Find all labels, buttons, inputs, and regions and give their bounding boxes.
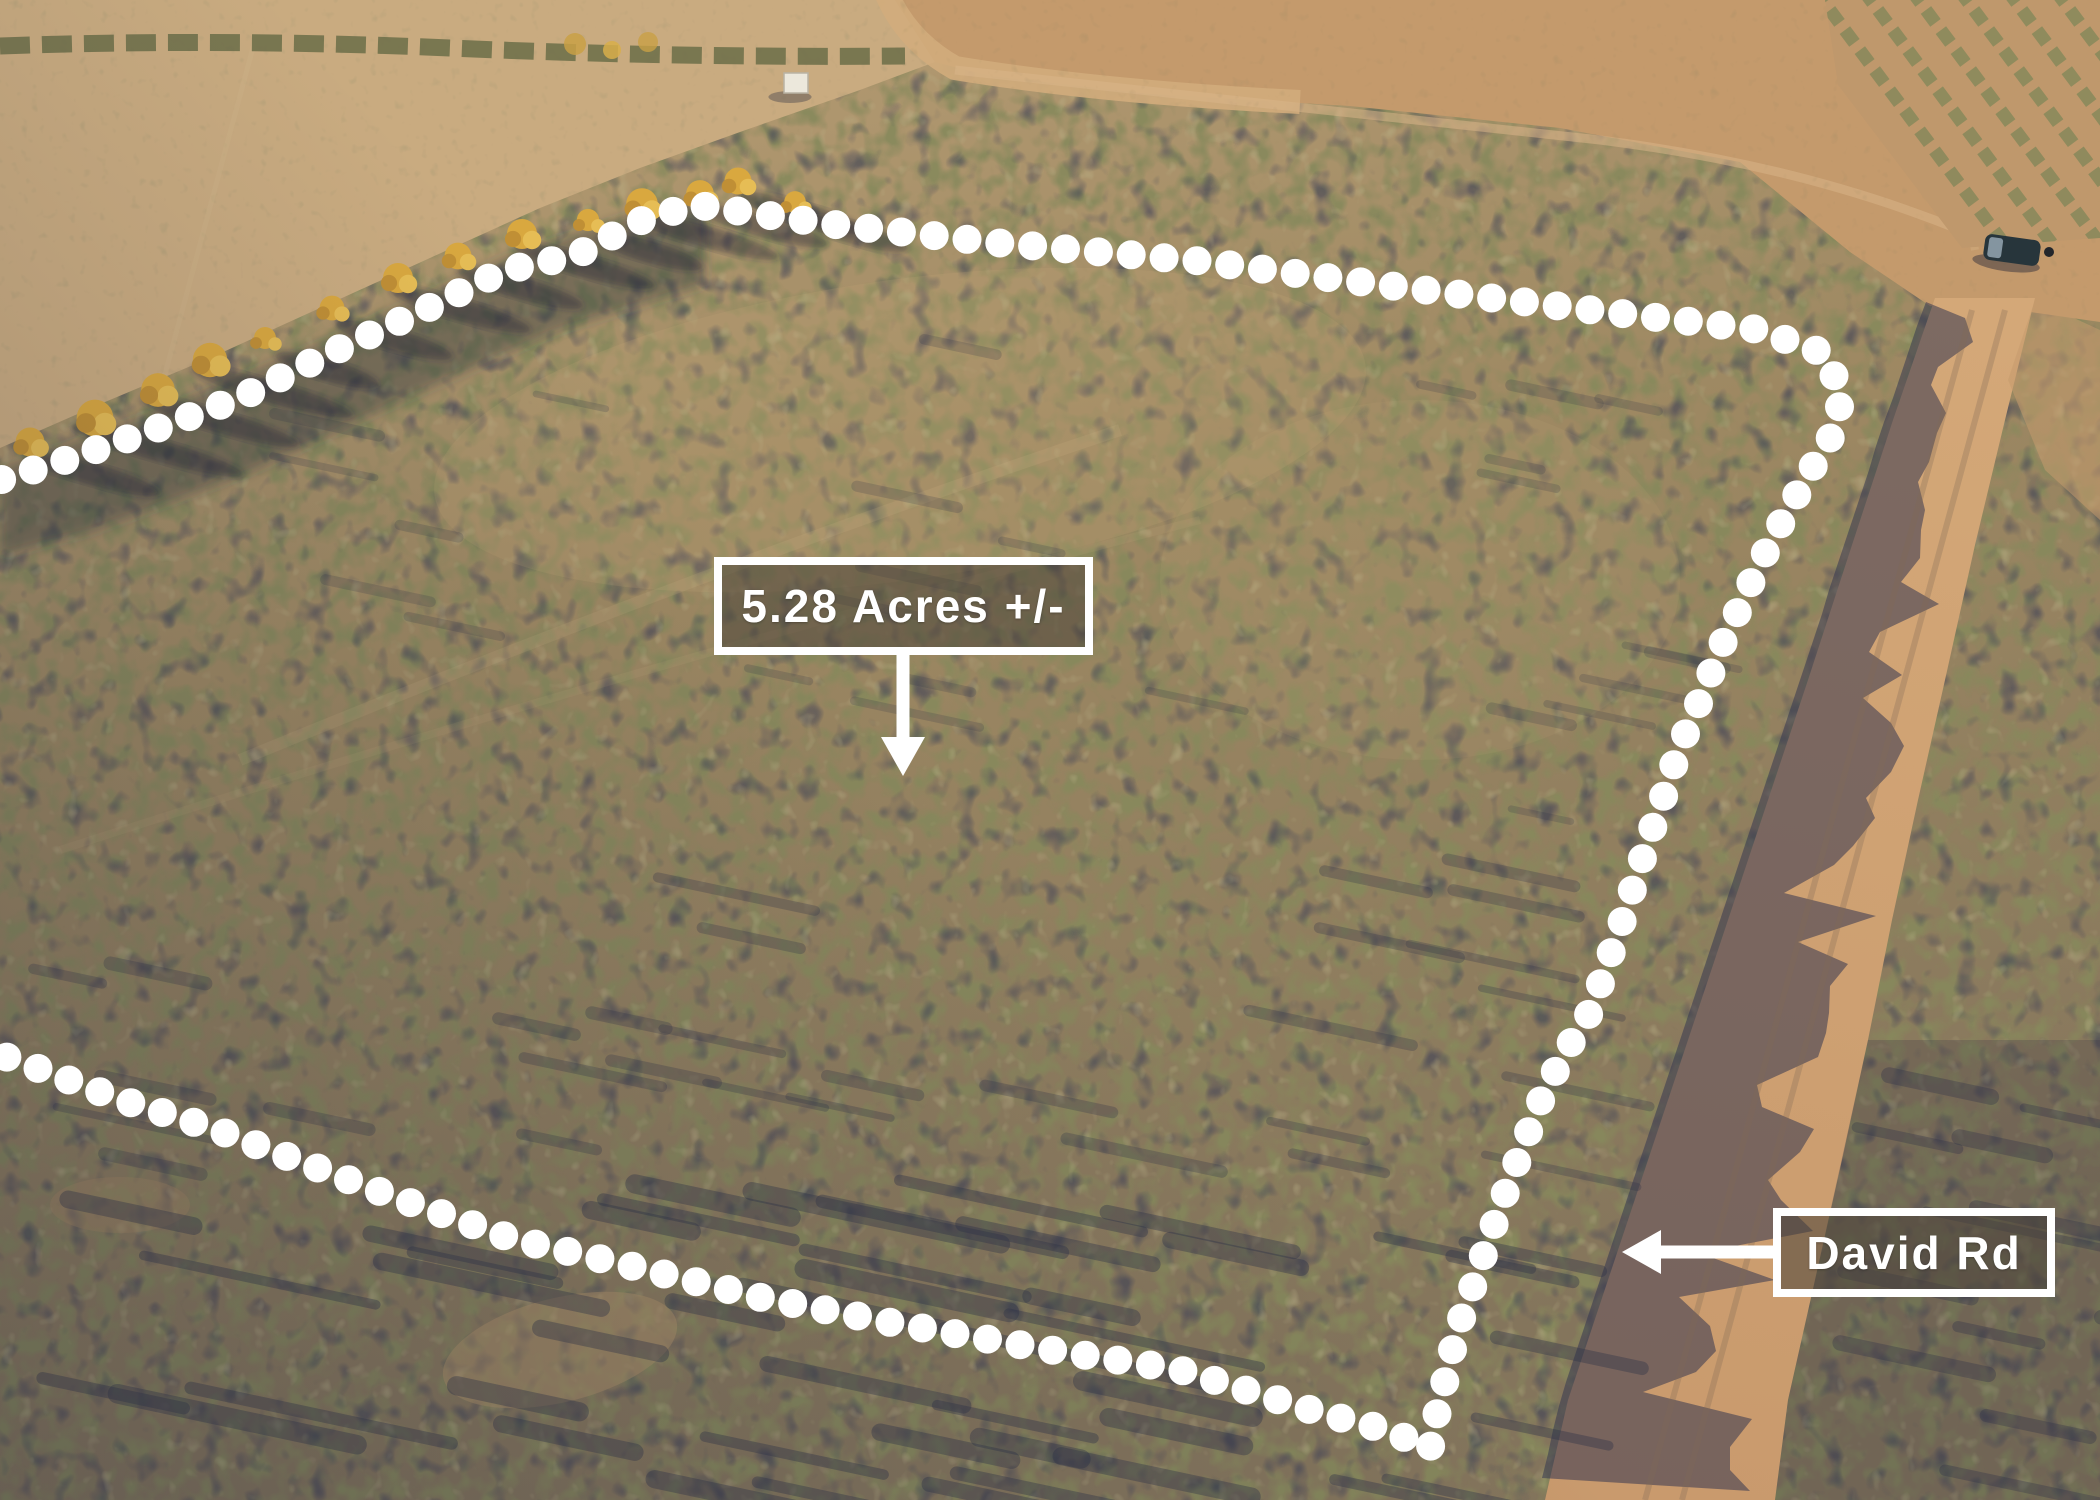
boundary-dot <box>1018 231 1047 260</box>
boundary-dot <box>1557 1028 1586 1057</box>
boundary-dot <box>19 456 48 485</box>
boundary-dot <box>659 197 688 226</box>
shed-roof <box>784 73 808 93</box>
boundary-dot <box>1444 280 1473 309</box>
boundary-dot <box>1281 259 1310 288</box>
boundary-dot <box>1215 250 1244 279</box>
boundary-dot <box>723 197 752 226</box>
boundary-dot <box>241 1130 270 1159</box>
boundary-dot <box>1638 813 1667 842</box>
boundary-dot <box>1389 1423 1418 1452</box>
boundary-dot <box>355 321 384 350</box>
boundary-dot <box>1038 1336 1067 1365</box>
arrow-shaft <box>1659 1246 1773 1259</box>
boundary-dot <box>1183 246 1212 275</box>
boundary-dot <box>1103 1346 1132 1375</box>
boundary-dot <box>1150 243 1179 272</box>
boundary-dot <box>746 1283 775 1312</box>
boundary-dot <box>54 1066 83 1095</box>
boundary-dot <box>1051 234 1080 263</box>
boundary-dot <box>1586 969 1615 998</box>
boundary-dot <box>1739 314 1768 343</box>
boundary-dot <box>113 424 142 453</box>
boundary-dot <box>1136 1351 1165 1380</box>
boundary-dot <box>1458 1272 1487 1301</box>
boundary-dot <box>325 334 354 363</box>
boundary-dot <box>908 1314 937 1343</box>
boundary-dot <box>789 206 818 235</box>
boundary-dot <box>266 363 295 392</box>
boundary-dot <box>1438 1335 1467 1364</box>
boundary-dot <box>887 218 916 247</box>
boundary-dot <box>396 1188 425 1217</box>
boundary-dot <box>1802 336 1831 365</box>
boundary-dot <box>385 307 414 336</box>
road-name-label: David Rd <box>1773 1208 2055 1297</box>
boundary-dot <box>691 192 720 221</box>
boundary-dot <box>650 1260 679 1289</box>
boundary-dot <box>1416 1432 1445 1461</box>
boundary-dot <box>1574 1000 1603 1029</box>
boundary-dot <box>1820 361 1849 390</box>
boundary-dot <box>1649 782 1678 811</box>
boundary-dot <box>778 1289 807 1318</box>
boundary-dot <box>206 391 235 420</box>
boundary-dot <box>821 210 850 239</box>
boundary-dot <box>1608 299 1637 328</box>
boundary-dot <box>1597 938 1626 967</box>
boundary-dot <box>1423 1399 1452 1428</box>
boundary-dot <box>474 264 503 293</box>
boundary-dot <box>1510 287 1539 316</box>
boundary-dot <box>1771 325 1800 354</box>
boundary-dot <box>427 1199 456 1228</box>
boundary-dot <box>1469 1241 1498 1270</box>
boundary-dot <box>1696 659 1725 688</box>
boundary-dot <box>1751 538 1780 567</box>
boundary-dot <box>179 1108 208 1137</box>
boundary-dot <box>1232 1376 1261 1405</box>
boundary-dot <box>1628 844 1657 873</box>
person <box>2044 247 2054 257</box>
boundary-dot <box>1480 1210 1509 1239</box>
boundary-dot <box>505 253 534 282</box>
boundary-dot <box>1825 392 1854 421</box>
boundary-dot <box>1541 1057 1570 1086</box>
boundary-dot <box>365 1177 394 1206</box>
arrow-shaft <box>897 655 910 739</box>
boundary-dot <box>1671 719 1700 748</box>
boundary-dot <box>82 435 111 464</box>
boundary-dot <box>144 414 173 443</box>
boundary-dot <box>1477 284 1506 313</box>
boundary-dot <box>1674 307 1703 336</box>
boundary-dot <box>598 222 627 251</box>
boundary-dot <box>973 1325 1002 1354</box>
boundary-dot <box>116 1088 145 1117</box>
boundary-dot <box>334 1165 363 1194</box>
boundary-dot <box>811 1295 840 1324</box>
boundary-dot <box>920 221 949 250</box>
boundary-dot <box>627 206 656 235</box>
boundary-dot <box>1358 1412 1387 1441</box>
acreage-text: 5.28 Acres +/- <box>741 579 1065 633</box>
boundary-dot <box>1295 1395 1324 1424</box>
boundary-dot <box>272 1142 301 1171</box>
boundary-dot <box>1736 568 1765 597</box>
boundary-dot <box>953 225 982 254</box>
boundary-dot <box>1502 1148 1531 1177</box>
boundary-dot <box>1723 598 1752 627</box>
boundary-dot <box>714 1275 743 1304</box>
boundary-dot <box>1766 509 1795 538</box>
boundary-dot <box>1168 1356 1197 1385</box>
boundary-dot <box>875 1308 904 1337</box>
boundary-dot <box>1799 452 1828 481</box>
boundary-dot <box>1248 255 1277 284</box>
boundary-dot <box>843 1302 872 1331</box>
boundary-dot <box>458 1210 487 1239</box>
vehicle-windshield <box>1987 237 2004 259</box>
road-name-text: David Rd <box>1806 1226 2021 1280</box>
aerial-photo: 5.28 Acres +/- David Rd <box>0 0 2100 1500</box>
boundary-dot <box>211 1119 240 1148</box>
boundary-dot <box>1379 272 1408 301</box>
boundary-dot <box>1346 267 1375 296</box>
boundary-dot <box>236 378 265 407</box>
boundary-dot <box>569 237 598 266</box>
boundary-dot <box>303 1154 332 1183</box>
boundary-dot <box>618 1252 647 1281</box>
boundary-dot <box>521 1230 550 1259</box>
boundary-dot <box>1491 1179 1520 1208</box>
boundary-dot <box>1084 237 1113 266</box>
boundary-dot <box>1313 263 1342 292</box>
boundary-dot <box>1071 1341 1100 1370</box>
boundary-dot <box>1659 750 1688 779</box>
boundary-dot <box>682 1267 711 1296</box>
boundary-dot <box>445 278 474 307</box>
boundary-dot <box>148 1098 177 1127</box>
boundary-dot <box>1412 276 1441 305</box>
boundary-dot <box>1543 291 1572 320</box>
boundary-dot <box>295 349 324 378</box>
boundary-dot <box>50 446 79 475</box>
boundary-dot <box>1117 240 1146 269</box>
boundary-dot <box>854 214 883 243</box>
boundary-dot <box>1514 1117 1543 1146</box>
boundary-dot <box>1709 628 1738 657</box>
boundary-dot <box>1816 424 1845 453</box>
boundary-dot <box>489 1221 518 1250</box>
boundary-dot <box>1200 1366 1229 1395</box>
boundary-dot <box>1326 1404 1355 1433</box>
boundary-dot <box>1608 907 1637 936</box>
boundary-dot <box>1641 303 1670 332</box>
boundary-dot <box>1430 1367 1459 1396</box>
boundary-dot <box>1618 876 1647 905</box>
boundary-dot <box>1684 689 1713 718</box>
boundary-dot <box>1575 295 1604 324</box>
boundary-dot <box>1447 1304 1476 1333</box>
boundary-dot <box>756 201 785 230</box>
boundary-dot <box>1526 1086 1555 1115</box>
boundary-dot <box>1263 1385 1292 1414</box>
acreage-label: 5.28 Acres +/- <box>714 557 1093 655</box>
boundary-dot <box>24 1054 53 1083</box>
boundary-dot <box>85 1077 114 1106</box>
boundary-dot <box>175 402 204 431</box>
boundary-dot <box>1006 1330 1035 1359</box>
boundary-dot <box>1782 480 1811 509</box>
boundary-dot <box>985 229 1014 258</box>
boundary-dot <box>415 293 444 322</box>
boundary-dot <box>1707 311 1736 340</box>
boundary-dot <box>585 1244 614 1273</box>
boundary-dot <box>941 1319 970 1348</box>
boundary-dot <box>537 246 566 275</box>
boundary-dot <box>553 1237 582 1266</box>
